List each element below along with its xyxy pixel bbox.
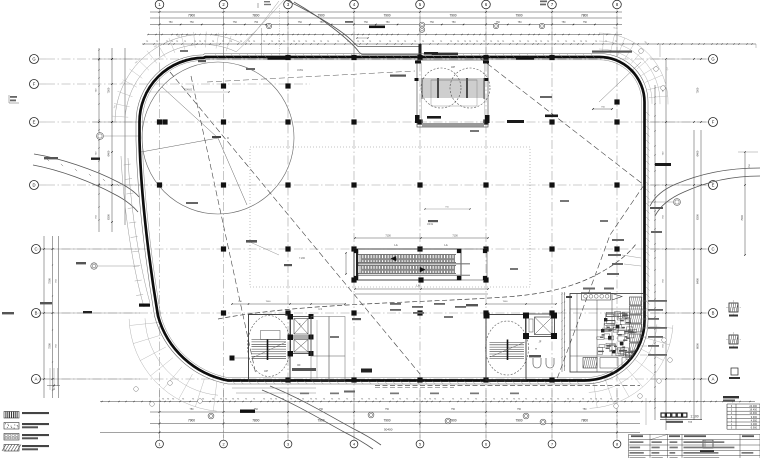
svg-text:w: w xyxy=(535,348,537,351)
svg-text:LA: LA xyxy=(444,243,447,247)
svg-text:B: B xyxy=(35,311,38,316)
svg-text:7100: 7100 xyxy=(385,235,391,238)
svg-text:2: 2 xyxy=(222,443,224,447)
svg-text:9.900: 9.900 xyxy=(751,416,758,419)
svg-text:i=1%: i=1% xyxy=(427,222,434,226)
svg-text:UP: UP xyxy=(264,369,268,373)
svg-text:7100: 7100 xyxy=(452,235,458,238)
svg-text:6300: 6300 xyxy=(107,214,111,220)
svg-text:7900: 7900 xyxy=(515,14,522,18)
svg-text:D: D xyxy=(32,183,35,188)
svg-text:750: 750 xyxy=(190,21,195,24)
svg-text:6400: 6400 xyxy=(695,278,699,284)
svg-text:750: 750 xyxy=(169,21,174,24)
svg-text:750: 750 xyxy=(583,21,588,24)
svg-text:7900: 7900 xyxy=(449,14,456,18)
svg-text:6: 6 xyxy=(485,443,487,447)
svg-text:T05: T05 xyxy=(688,421,693,424)
svg-text:7900: 7900 xyxy=(188,418,195,422)
svg-text:7500: 7500 xyxy=(695,87,699,93)
svg-text:G: G xyxy=(32,57,35,62)
svg-text:1:3: 1:3 xyxy=(318,307,322,311)
svg-text:8: 8 xyxy=(616,443,618,447)
svg-text:G: G xyxy=(711,57,714,62)
svg-text:19.450: 19.450 xyxy=(749,409,757,412)
svg-text:UP: UP xyxy=(451,65,455,69)
svg-text:7500: 7500 xyxy=(107,87,111,93)
svg-text:7500: 7500 xyxy=(48,343,52,349)
svg-text:R24600: R24600 xyxy=(184,90,193,92)
svg-text:7800: 7800 xyxy=(252,14,259,18)
svg-text:LA: LA xyxy=(416,284,419,288)
svg-text:6300: 6300 xyxy=(695,214,699,220)
svg-text:C: C xyxy=(34,247,37,252)
svg-text:i=3%: i=3% xyxy=(297,68,304,72)
svg-text:750: 750 xyxy=(364,21,369,24)
svg-text:5: 5 xyxy=(419,443,421,447)
svg-text:7.200: 7.200 xyxy=(299,257,306,260)
svg-text:4: 4 xyxy=(353,443,355,447)
svg-text:0.000: 0.000 xyxy=(751,423,758,426)
svg-text:A: A xyxy=(35,377,38,382)
svg-text:LA: LA xyxy=(394,243,397,247)
svg-text:B: B xyxy=(712,311,715,316)
svg-text:A: A xyxy=(712,377,715,382)
svg-text:7500: 7500 xyxy=(741,215,744,221)
svg-text:24.000: 24.000 xyxy=(749,405,757,408)
svg-text:750: 750 xyxy=(452,21,457,24)
svg-text:7500: 7500 xyxy=(48,278,52,284)
svg-text:7900: 7900 xyxy=(383,14,390,18)
svg-text:6600: 6600 xyxy=(695,343,699,349)
svg-text:7900: 7900 xyxy=(383,418,390,422)
svg-text:750: 750 xyxy=(518,21,523,24)
svg-text:4.950: 4.950 xyxy=(751,419,758,422)
svg-text:750: 750 xyxy=(385,408,390,411)
svg-text:7800: 7800 xyxy=(581,14,588,18)
svg-text:750: 750 xyxy=(298,21,303,24)
svg-text:750: 750 xyxy=(430,21,435,24)
svg-text:750: 750 xyxy=(190,408,195,411)
svg-text:3: 3 xyxy=(287,443,289,447)
svg-text:1:100: 1:100 xyxy=(690,415,698,419)
svg-text:E: E xyxy=(33,120,36,125)
svg-text:7500: 7500 xyxy=(503,301,509,303)
svg-text:750: 750 xyxy=(386,21,391,24)
svg-text:750: 750 xyxy=(254,21,259,24)
svg-text:7: 7 xyxy=(551,443,553,447)
svg-text:1: 1 xyxy=(158,443,160,447)
svg-text:750: 750 xyxy=(451,408,456,411)
svg-text:F: F xyxy=(712,120,715,125)
svg-text:R: R xyxy=(227,137,229,140)
svg-text:DF: DF xyxy=(297,364,301,367)
svg-text:7500: 7500 xyxy=(266,301,272,303)
svg-text:7900: 7900 xyxy=(188,14,195,18)
svg-text:E: E xyxy=(712,183,715,188)
svg-text:14.900: 14.900 xyxy=(749,412,757,415)
svg-text:50400: 50400 xyxy=(384,428,393,432)
svg-text:-5.900: -5.900 xyxy=(750,427,758,430)
svg-text:6400: 6400 xyxy=(107,150,111,156)
svg-text:750: 750 xyxy=(583,408,588,411)
svg-text:F: F xyxy=(33,82,36,87)
svg-text:750: 750 xyxy=(562,21,567,24)
svg-text:7900: 7900 xyxy=(515,418,522,422)
svg-text:6400: 6400 xyxy=(695,150,699,156)
svg-text:7800: 7800 xyxy=(581,418,588,422)
svg-text:750: 750 xyxy=(233,21,238,24)
svg-text:7800: 7800 xyxy=(252,418,259,422)
svg-text:750: 750 xyxy=(517,408,522,411)
svg-text:C: C xyxy=(711,247,714,252)
